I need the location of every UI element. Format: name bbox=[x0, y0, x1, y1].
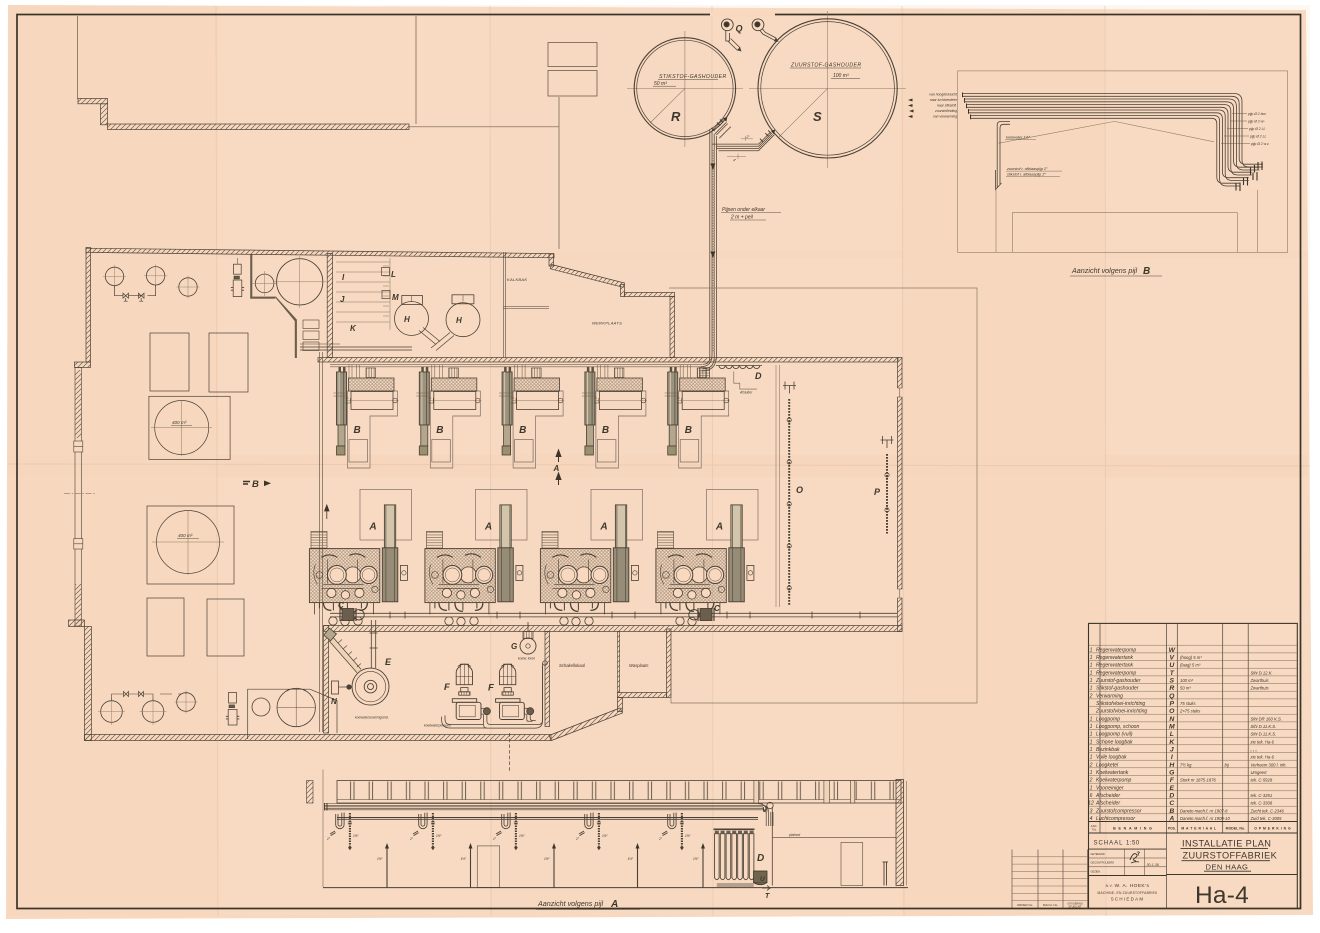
svg-text:Regenwatertank: Regenwatertank bbox=[1096, 655, 1134, 661]
svg-text:Bezinkbak: Bezinkbak bbox=[1096, 747, 1120, 753]
svg-text:1:50: 1:50 bbox=[1126, 841, 1140, 847]
svg-text:D: D bbox=[757, 853, 764, 864]
svg-text:50 m³: 50 m³ bbox=[654, 81, 667, 87]
svg-text:Verwarming: Verwarming bbox=[1096, 693, 1123, 699]
svg-text:koelwaterpompen: koelwaterpompen bbox=[424, 724, 451, 728]
svg-text:J: J bbox=[1170, 747, 1174, 754]
svg-text:7½ kg: 7½ kg bbox=[1180, 762, 1192, 767]
svg-text:H: H bbox=[456, 316, 462, 325]
svg-text:1: 1 bbox=[1090, 785, 1093, 791]
svg-text:400 m³: 400 m³ bbox=[172, 420, 187, 425]
svg-text:SCHIEDAM: SCHIEDAM bbox=[1111, 897, 1145, 902]
svg-text:Afscheider: Afscheider bbox=[1095, 801, 1120, 807]
svg-text:Koelwatertank: Koelwatertank bbox=[1096, 770, 1129, 776]
svg-text:Sihi D.12.K.: Sihi D.12.K. bbox=[1251, 670, 1273, 675]
svg-text:KALKBAK: KALKBAK bbox=[507, 277, 527, 282]
svg-text:Loogpomp (vuil): Loogpomp (vuil) bbox=[1096, 732, 1133, 738]
svg-text:1: 1 bbox=[1090, 670, 1093, 676]
svg-text:1: 1 bbox=[1090, 663, 1093, 669]
svg-text:SCHAAL: SCHAAL bbox=[1094, 841, 1124, 847]
svg-text:INSTALLATIE PLAN: INSTALLATIE PLAN bbox=[1182, 838, 1271, 848]
svg-text:400 m³: 400 m³ bbox=[178, 533, 193, 538]
svg-text:van verwarming: van verwarming bbox=[933, 115, 957, 119]
svg-text:Zuurstofvloei-inrichting: Zuurstofvloei-inrichting bbox=[1095, 709, 1147, 715]
svg-text:F: F bbox=[488, 683, 494, 694]
svg-text:C: C bbox=[714, 604, 720, 613]
svg-text:B: B bbox=[1169, 808, 1174, 815]
svg-text:E: E bbox=[385, 657, 392, 667]
svg-text:P: P bbox=[874, 487, 881, 497]
svg-text:pijp Ø 2 w³: pijp Ø 2 w³ bbox=[1247, 120, 1265, 124]
svg-text:F: F bbox=[444, 682, 450, 693]
svg-text:GEZIEN: GEZIEN bbox=[1091, 869, 1101, 873]
svg-text:N: N bbox=[331, 697, 337, 706]
svg-text:M: M bbox=[392, 293, 399, 302]
svg-text:zie tek. Ha-6: zie tek. Ha-6 bbox=[1250, 755, 1275, 760]
svg-text:2×75 stuks: 2×75 stuks bbox=[1179, 709, 1201, 714]
svg-text:tek. C-3308: tek. C-3308 bbox=[1251, 801, 1273, 806]
svg-text:I: I bbox=[1171, 754, 1173, 761]
svg-text:G: G bbox=[1169, 770, 1175, 777]
svg-text:Afsluiter: Afsluiter bbox=[739, 391, 753, 395]
svg-text:STIKSTOF-GASHOUDER: STIKSTOF-GASHOUDER bbox=[659, 74, 727, 80]
svg-text:L: L bbox=[1170, 731, 1174, 738]
svg-text:100 m³: 100 m³ bbox=[833, 73, 849, 79]
svg-text:Q: Q bbox=[736, 24, 743, 34]
svg-text:van hoogdruklucht: van hoogdruklucht bbox=[929, 93, 958, 97]
svg-text:Afscheider: Afscheider bbox=[1095, 793, 1120, 799]
svg-text:zie tek. Ha-6: zie tek. Ha-6 bbox=[1250, 739, 1275, 744]
svg-text:Aanzicht volgens pijl: Aanzicht volgens pijl bbox=[1071, 266, 1138, 275]
svg-text:Aanzicht volgens pijl: Aanzicht volgens pijl bbox=[537, 899, 604, 908]
svg-text:D: D bbox=[1169, 793, 1174, 800]
svg-text:Sihi DR 160 K.S.: Sihi DR 160 K.S. bbox=[1251, 716, 1282, 721]
svg-text:2: 2 bbox=[1089, 762, 1093, 768]
svg-text:koelwater 1½″: koelwater 1½″ bbox=[1006, 136, 1031, 140]
svg-text:WERKPLAATS: WERKPLAATS bbox=[592, 321, 622, 326]
svg-text:koelwaterzuiveringsinst.: koelwaterzuiveringsinst. bbox=[355, 716, 389, 720]
svg-text:4: 4 bbox=[1090, 816, 1093, 822]
svg-text:B: B bbox=[252, 479, 259, 490]
svg-text:naar luchtverdeler: naar luchtverdeler bbox=[930, 98, 958, 102]
svg-text:O P M E R K I N G: O P M E R K I N G bbox=[1254, 826, 1291, 830]
svg-text:Zuurstofcompressor: Zuurstofcompressor bbox=[1095, 808, 1142, 814]
svg-text:W: W bbox=[1169, 647, 1176, 654]
svg-text:MACHINE- EN ZUURSTOFFABRIEK: MACHINE- EN ZUURSTOFFABRIEK bbox=[1098, 891, 1159, 895]
svg-text:S: S bbox=[813, 109, 822, 124]
svg-text:Zuurstof-gashouder: Zuurstof-gashouder bbox=[1095, 678, 1141, 684]
svg-text:pijp Ø 2 LL: pijp Ø 2 LL bbox=[1249, 135, 1267, 139]
svg-text:Loogpomp, schoon: Loogpomp, schoon bbox=[1096, 724, 1139, 730]
svg-text:1: 1 bbox=[1090, 655, 1093, 661]
svg-text:MACH. No.: MACH. No. bbox=[1043, 903, 1058, 907]
svg-text:Luchtcompressor: Luchtcompressor bbox=[1096, 816, 1135, 822]
svg-text:Q: Q bbox=[1169, 693, 1175, 700]
svg-text:A: A bbox=[553, 464, 560, 473]
svg-text:Regenwatertank: Regenwatertank bbox=[1096, 663, 1134, 669]
svg-text:Zwarthuis: Zwarthuis bbox=[1250, 678, 1270, 683]
svg-text:(laag) 5 m³: (laag) 5 m³ bbox=[1180, 663, 1201, 668]
svg-text:M A T E R I A A L: M A T E R I A A L bbox=[1181, 826, 1216, 830]
svg-text:J: J bbox=[340, 295, 345, 304]
svg-text:Umgeert: Umgeert bbox=[1251, 770, 1268, 775]
svg-text:1: 1 bbox=[1090, 770, 1093, 776]
svg-text:Vuile loogbak: Vuile loogbak bbox=[1096, 755, 1127, 761]
svg-text:2: 2 bbox=[1089, 778, 1093, 784]
svg-text:1: 1 bbox=[1090, 678, 1093, 684]
svg-text:Daneto mach.f. nr 1907-8: Daneto mach.f. nr 1907-8 bbox=[1180, 808, 1228, 813]
svg-text:Stork nr 1875-1876: Stork nr 1875-1876 bbox=[1180, 778, 1217, 783]
svg-text:L: L bbox=[391, 270, 396, 279]
svg-text:D: D bbox=[755, 371, 762, 381]
svg-text:GETEKEND: GETEKEND bbox=[1091, 852, 1105, 856]
svg-text:Regenwaterpomp: Regenwaterpomp bbox=[1096, 647, 1136, 653]
svg-text:C: C bbox=[338, 601, 344, 610]
svg-text:Schakellokaal: Schakellokaal bbox=[559, 663, 586, 668]
svg-text:POS.: POS. bbox=[1168, 826, 1176, 830]
svg-text:AAN-: AAN- bbox=[1091, 824, 1098, 828]
svg-text:plafond: plafond bbox=[788, 833, 800, 837]
svg-text:Verheem 300 l. inh.: Verheem 300 l. inh. bbox=[1251, 762, 1287, 767]
svg-text:1: 1 bbox=[1090, 755, 1093, 761]
svg-text:GECONTROLEERD: GECONTROLEERD bbox=[1091, 861, 1115, 865]
svg-text:Zuid tek. C-3005: Zuid tek. C-3005 bbox=[1250, 816, 1283, 821]
svg-text:Regenwaterpomp: Regenwaterpomp bbox=[1096, 670, 1136, 676]
svg-text:„ „ „: „ „ „ bbox=[1250, 747, 1258, 752]
svg-text:Koelwaterpomp: Koelwaterpomp bbox=[1096, 778, 1132, 784]
svg-text:1: 1 bbox=[1090, 716, 1093, 722]
svg-text:O: O bbox=[1169, 708, 1175, 715]
svg-text:Voorreiniger: Voorreiniger bbox=[1096, 785, 1124, 791]
svg-text:naar stikstofl.: naar stikstofl. bbox=[937, 104, 957, 108]
svg-text:A: A bbox=[1168, 816, 1174, 823]
svg-text:Sihi D.11.K.S.: Sihi D.11.K.S. bbox=[1251, 724, 1277, 729]
svg-text:ORDER No.: ORDER No. bbox=[1017, 903, 1034, 907]
svg-text:Zwarthuis: Zwarthuis bbox=[1250, 686, 1270, 691]
svg-text:Wasplaats: Wasplaats bbox=[629, 663, 649, 668]
svg-text:zuurstofleiding: zuurstofleiding bbox=[934, 109, 957, 113]
svg-text:Schone loogbak: Schone loogbak bbox=[1096, 739, 1133, 745]
svg-text:O: O bbox=[796, 485, 803, 495]
svg-text:75 stuks: 75 stuks bbox=[1180, 701, 1197, 706]
svg-text:tek. C-5928: tek. C-5928 bbox=[1251, 778, 1273, 783]
svg-text:Pijpen onder elkaar: Pijpen onder elkaar bbox=[722, 207, 765, 213]
svg-text:T: T bbox=[765, 893, 770, 900]
svg-text:M: M bbox=[1169, 724, 1175, 731]
svg-text:P: P bbox=[1170, 701, 1175, 708]
svg-text:R: R bbox=[1169, 685, 1174, 692]
svg-text:1: 1 bbox=[1090, 647, 1093, 653]
svg-text:tek. C-3351: tek. C-3351 bbox=[1251, 793, 1273, 798]
svg-text:koelw. toren: koelw. toren bbox=[518, 657, 535, 661]
svg-text:MODEL No.: MODEL No. bbox=[1226, 826, 1246, 830]
svg-text:30-1-36: 30-1-36 bbox=[1147, 863, 1159, 867]
svg-text:H: H bbox=[404, 315, 410, 324]
svg-text:2: 2 bbox=[1089, 693, 1093, 699]
svg-text:DEN HAAG: DEN HAAG bbox=[1206, 862, 1249, 871]
svg-text:Stikstofvloei-inrichting: Stikstofvloei-inrichting bbox=[1096, 701, 1145, 707]
svg-text:3: 3 bbox=[1090, 808, 1093, 814]
svg-text:pijp Ø 2 w.v.: pijp Ø 2 w.v. bbox=[1250, 142, 1269, 146]
svg-text:E: E bbox=[1170, 785, 1175, 792]
svg-text:50 m³: 50 m³ bbox=[1180, 686, 1191, 691]
svg-text:Loogpomp: Loogpomp bbox=[1096, 716, 1120, 722]
svg-text:12: 12 bbox=[1088, 801, 1094, 807]
svg-text:100 m³: 100 m³ bbox=[1180, 678, 1194, 683]
svg-text:B E N A M I N G: B E N A M I N G bbox=[1113, 826, 1153, 830]
svg-text:pijp Ø 2 bw³: pijp Ø 2 bw³ bbox=[1247, 112, 1267, 116]
svg-text:6: 6 bbox=[1090, 793, 1093, 799]
svg-text:1: 1 bbox=[1090, 724, 1093, 730]
svg-text:pijp Ø 2 LL: pijp Ø 2 LL bbox=[1248, 127, 1266, 131]
svg-text:1: 1 bbox=[1090, 732, 1093, 738]
svg-text:Zucht tek. C-2346: Zucht tek. C-2346 bbox=[1250, 808, 1285, 813]
svg-text:TAL: TAL bbox=[1092, 828, 1097, 832]
svg-text:1: 1 bbox=[1090, 747, 1093, 753]
svg-text:1: 1 bbox=[1090, 739, 1093, 745]
svg-text:S: S bbox=[1170, 678, 1175, 685]
svg-text:Daneto mach.f. nr 1909-10: Daneto mach.f. nr 1909-10 bbox=[1180, 816, 1230, 821]
svg-text:Sihi D.11.K.S.: Sihi D.11.K.S. bbox=[1251, 732, 1277, 737]
svg-text:Ha-4: Ha-4 bbox=[1195, 882, 1249, 909]
svg-text:A: A bbox=[610, 899, 618, 910]
svg-text:2 m + peil: 2 m + peil bbox=[730, 215, 754, 221]
svg-text:G: G bbox=[511, 642, 517, 651]
svg-text:U: U bbox=[760, 876, 765, 883]
svg-text:STUKLIJST: STUKLIJST bbox=[1068, 906, 1082, 909]
svg-text:Stikstof-gashouder: Stikstof-gashouder bbox=[1096, 686, 1139, 692]
svg-text:C: C bbox=[1169, 800, 1174, 807]
svg-text:Loogketel: Loogketel bbox=[1096, 762, 1119, 768]
svg-text:1: 1 bbox=[1090, 686, 1093, 692]
svg-text:ZUURSTOF-GASHOUDER: ZUURSTOF-GASHOUDER bbox=[790, 63, 862, 69]
svg-text:ZUURSTOFFABRIEK: ZUURSTOFFABRIEK bbox=[1183, 851, 1278, 861]
svg-text:(hoog) 5 m³: (hoog) 5 m³ bbox=[1180, 655, 1202, 660]
svg-text:R: R bbox=[671, 109, 681, 124]
svg-text:zuurstof r. afblaaspijp 2″: zuurstof r. afblaaspijp 2″ bbox=[1006, 167, 1048, 171]
svg-text:B: B bbox=[1143, 266, 1150, 277]
svg-text:stikstof r. afblaaspijp 2″: stikstof r. afblaaspijp 2″ bbox=[1007, 173, 1046, 177]
